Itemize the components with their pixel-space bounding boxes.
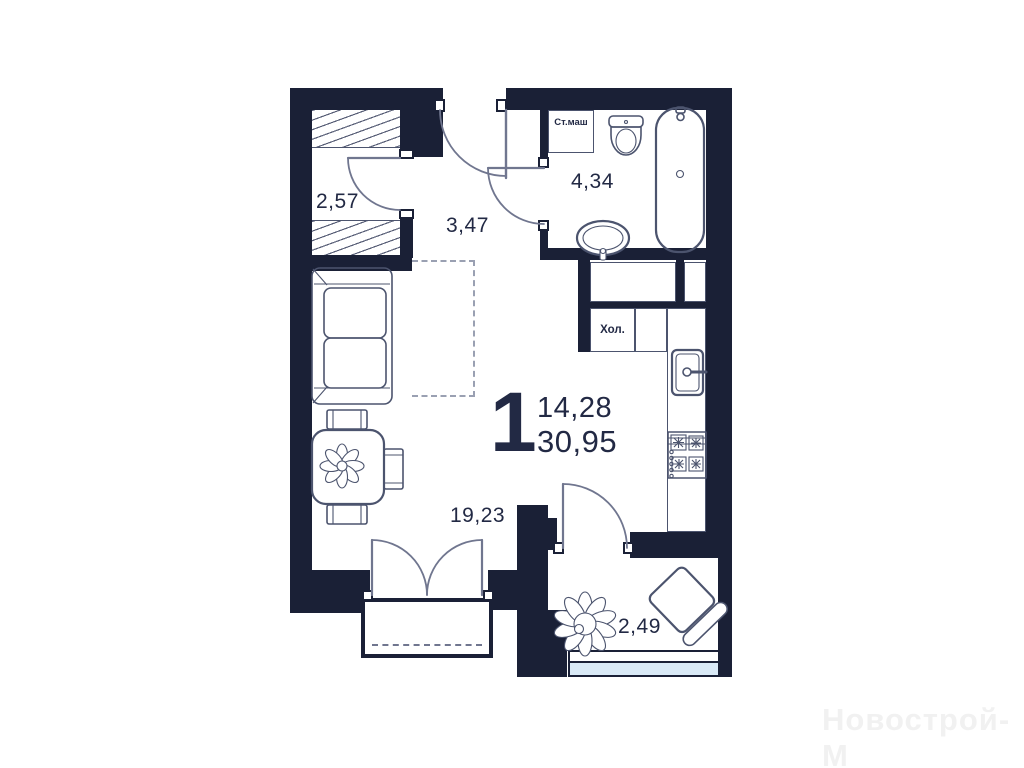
balcony-door [563,484,627,548]
developer-watermark: Новострой-М [822,702,1024,768]
dining-table [312,410,403,524]
kitchen-sink [672,350,706,395]
chair-right [384,449,403,489]
bathtub [656,107,704,252]
balcony-area-label: 2,49 [618,615,661,639]
stove [668,432,706,478]
stove-burners [671,435,703,471]
sofa [312,268,392,404]
total-area-value: 30,95 [537,424,617,460]
chair-top [327,410,367,429]
toilet [609,116,643,155]
bathroom-area-label: 4,34 [571,170,614,194]
french-door [372,540,482,595]
floor-plan: Ст.маш Хол. [0,0,1024,768]
bathroom-sink [577,221,629,260]
living-room-area-label: 19,23 [450,504,505,528]
bathroom-door [488,168,544,224]
balcony-plant [552,592,617,656]
wardrobe-area-label: 2,57 [316,190,359,214]
table-plant-icon [320,444,364,488]
rooms-count: 1 [490,389,537,455]
chair-bottom [327,505,367,524]
hallway-area-label: 3,47 [446,214,489,238]
living-area-value: 14,28 [537,392,612,425]
